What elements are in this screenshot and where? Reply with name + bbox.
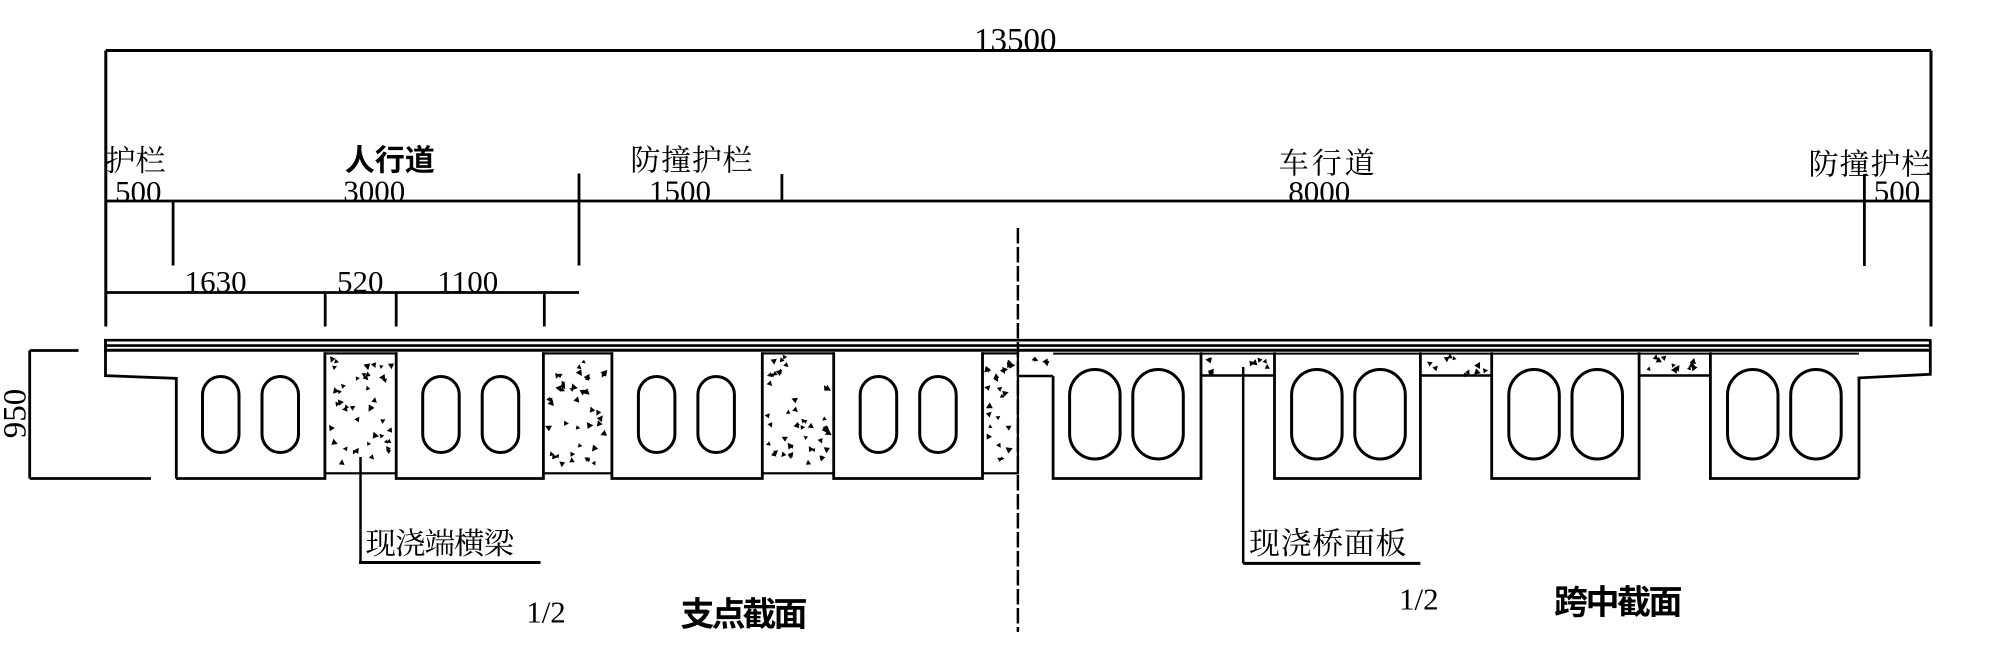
svg-text:1/2: 1/2: [526, 595, 566, 630]
svg-text:8000: 8000: [1288, 174, 1350, 209]
svg-text:520: 520: [337, 264, 384, 299]
svg-text:1/2: 1/2: [1399, 582, 1439, 617]
svg-text:1630: 1630: [185, 264, 247, 299]
svg-text:500: 500: [115, 174, 162, 209]
svg-text:500: 500: [1874, 174, 1921, 209]
svg-text:950: 950: [0, 389, 34, 439]
svg-text:1500: 1500: [649, 174, 711, 209]
svg-text:1100: 1100: [437, 264, 498, 299]
svg-text:13500: 13500: [974, 22, 1057, 58]
svg-text:3000: 3000: [343, 174, 405, 209]
